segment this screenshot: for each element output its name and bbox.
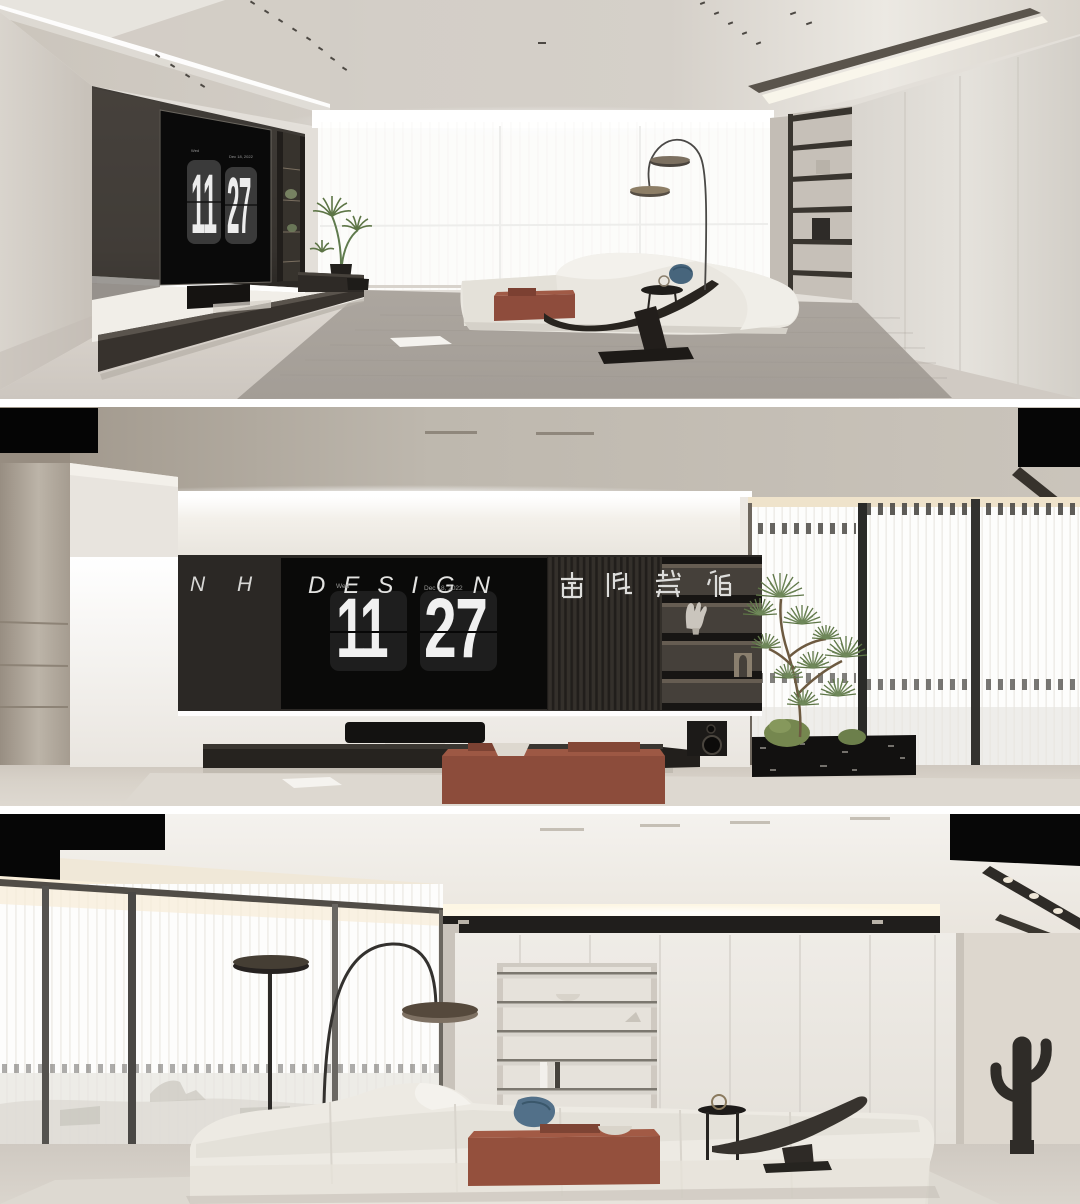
svg-text:27: 27: [227, 162, 251, 251]
svg-text:11: 11: [191, 158, 216, 251]
svg-text:Wed: Wed: [336, 583, 350, 590]
svg-text:N H: N H: [190, 573, 265, 596]
svg-text:Dec 18, 2022: Dec 18, 2022: [424, 585, 463, 592]
svg-text:Dec 18, 2022: Dec 18, 2022: [229, 154, 254, 159]
svg-text:Wed: Wed: [191, 148, 199, 153]
